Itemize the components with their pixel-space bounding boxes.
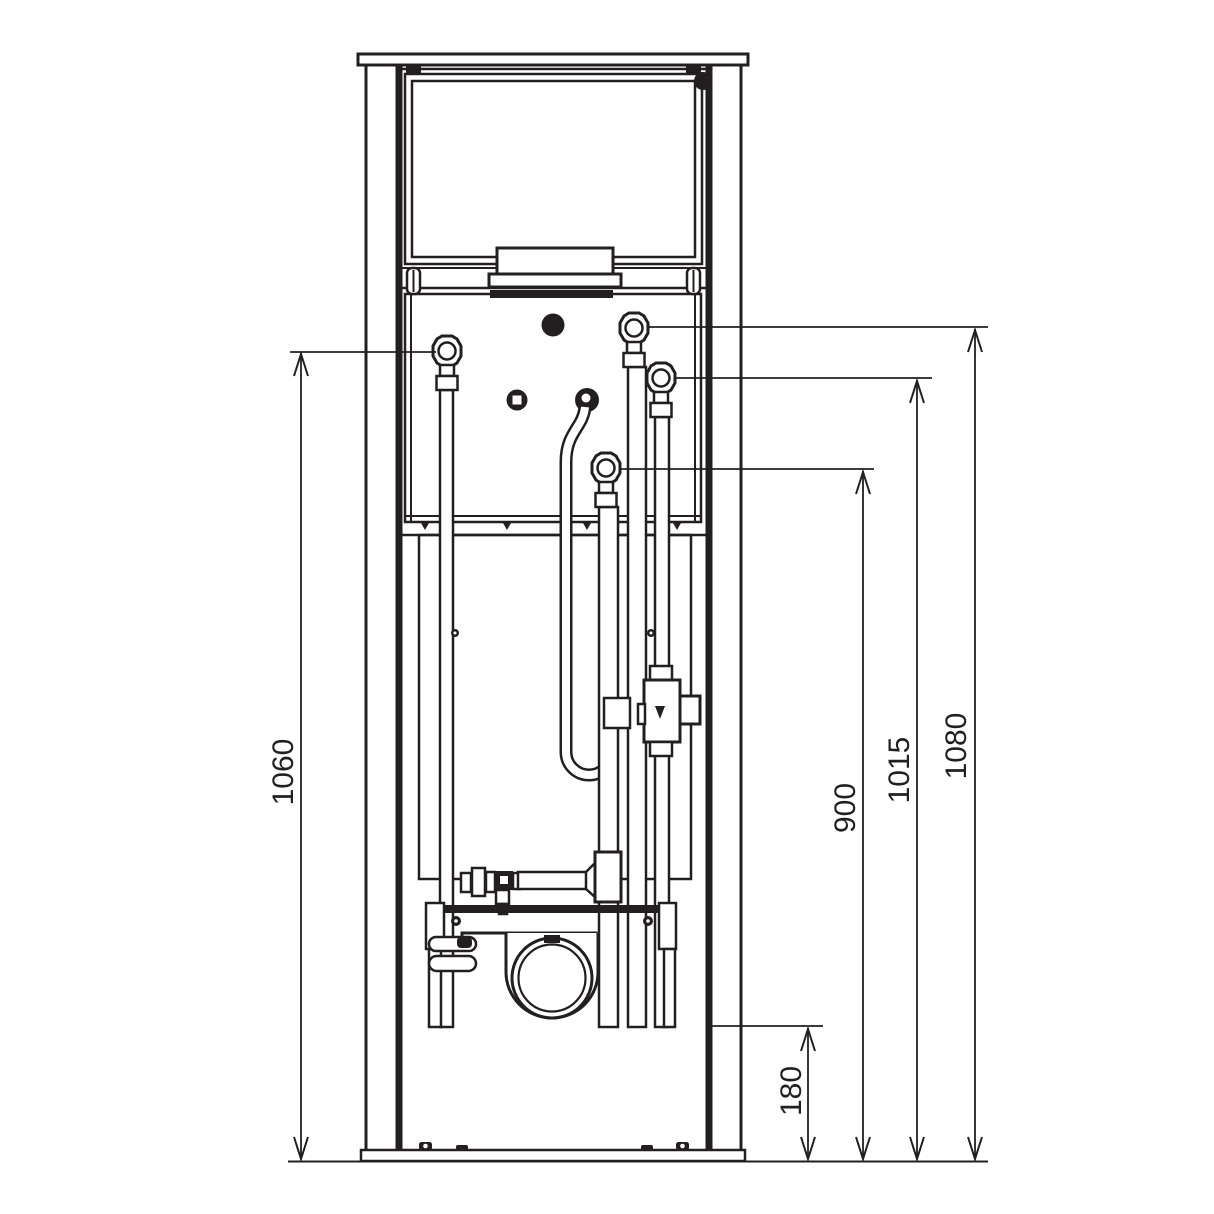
dimension-label-900: 900 xyxy=(829,783,862,833)
elbow-fitting-left xyxy=(433,336,461,390)
tee-fitting xyxy=(595,852,621,902)
dimension-label-1060: 1060 xyxy=(267,739,300,806)
base-plate xyxy=(361,1150,745,1161)
top-window-frame xyxy=(399,65,712,294)
corner-pivot xyxy=(694,72,712,90)
technical-drawing-canvas: 1060 900 1015 1080 180 xyxy=(0,0,1214,1214)
left-top-tab xyxy=(406,65,421,73)
dimension-label-180: 180 xyxy=(775,1066,808,1116)
right-top-tab xyxy=(686,65,701,73)
center-flush-pipe xyxy=(599,507,618,1027)
center-bracket-flange xyxy=(489,274,621,287)
installation-frame-drawing: 1060 900 1015 1080 180 xyxy=(0,0,1214,1214)
top-cap-rail xyxy=(358,54,748,65)
panel-top-clamp-bar xyxy=(490,290,613,298)
right-rail-bracket xyxy=(659,903,676,949)
round-hole xyxy=(542,314,565,337)
center-bracket-plate xyxy=(497,248,613,274)
dimension-label-1080: 1080 xyxy=(940,713,973,780)
left-corner-bolt xyxy=(407,268,420,294)
elbow-fitting-right xyxy=(647,363,675,417)
hose-connector-fitting xyxy=(604,698,630,728)
elbow-fitting-top-right xyxy=(620,313,648,367)
dimension-180: 180 xyxy=(712,1026,823,1159)
right-corner-bolt xyxy=(687,268,700,294)
dimension-label-1015: 1015 xyxy=(883,737,916,804)
drain-outlet xyxy=(462,933,598,1018)
elbow-fitting-center xyxy=(592,453,620,507)
